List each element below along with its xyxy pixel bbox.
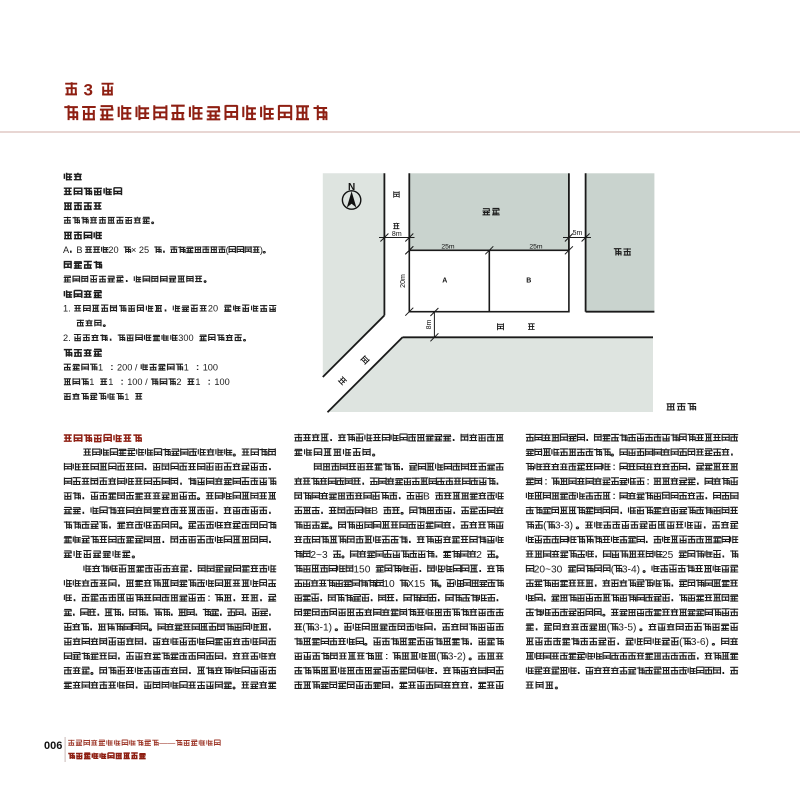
svg-text:10: 10: [383, 579, 395, 590]
svg-text:B: B: [526, 278, 531, 285]
svg-text:25m: 25m: [441, 244, 455, 251]
svg-text:(: (: [302, 623, 306, 634]
svg-text:150: 150: [353, 564, 370, 575]
svg-text:8m: 8m: [392, 231, 402, 238]
svg-text:(: (: [543, 521, 547, 532]
svg-text:3-3): 3-3): [555, 521, 573, 532]
svg-text:3-2): 3-2): [448, 652, 466, 663]
svg-text:3-4): 3-4): [622, 564, 640, 575]
svg-text:(: (: [226, 245, 229, 255]
svg-text:3: 3: [84, 80, 93, 99]
svg-text:1: 1: [124, 392, 129, 402]
svg-text:): ): [260, 245, 263, 255]
svg-text:× 25: × 25: [131, 245, 149, 255]
svg-text:B: B: [423, 492, 430, 503]
svg-text:2.: 2.: [63, 333, 71, 343]
svg-text:B: B: [371, 506, 378, 517]
svg-text:3-1): 3-1): [314, 623, 332, 634]
svg-text:25: 25: [662, 550, 674, 561]
svg-text:2~3: 2~3: [310, 550, 328, 561]
svg-text:2: 2: [176, 377, 181, 387]
svg-text:X15: X15: [407, 579, 425, 590]
svg-text:100: 100: [214, 377, 229, 387]
svg-text:8m: 8m: [426, 319, 433, 329]
svg-text:A: A: [442, 278, 447, 285]
svg-text:100: 100: [203, 362, 218, 372]
svg-text:3-6): 3-6): [691, 637, 709, 648]
svg-text:B: B: [76, 245, 82, 255]
svg-text:5m: 5m: [573, 230, 583, 237]
svg-text:(: (: [607, 623, 611, 634]
svg-text:20: 20: [208, 304, 218, 314]
svg-text:——: ——: [159, 739, 175, 748]
svg-text:1: 1: [184, 362, 189, 372]
svg-text:300: 300: [178, 333, 193, 343]
svg-text:3-5): 3-5): [618, 623, 636, 634]
svg-text:A: A: [63, 245, 70, 255]
svg-text:20: 20: [108, 245, 118, 255]
svg-text:(: (: [679, 637, 683, 648]
svg-text:2: 2: [476, 550, 482, 561]
svg-text:1.: 1.: [63, 304, 71, 314]
svg-text:006: 006: [44, 740, 62, 752]
svg-text:1: 1: [195, 377, 200, 387]
svg-text:(: (: [611, 564, 615, 575]
svg-text:1: 1: [98, 362, 103, 372]
svg-text:200 /: 200 /: [117, 362, 138, 372]
svg-text:20m: 20m: [400, 274, 407, 288]
svg-text:20~30: 20~30: [534, 564, 563, 575]
svg-text:1: 1: [108, 377, 113, 387]
svg-text:25m: 25m: [529, 244, 543, 251]
svg-text:(: (: [436, 652, 440, 663]
svg-text:1: 1: [89, 377, 94, 387]
svg-text:N: N: [348, 182, 355, 193]
svg-text:100 /: 100 /: [127, 377, 148, 387]
